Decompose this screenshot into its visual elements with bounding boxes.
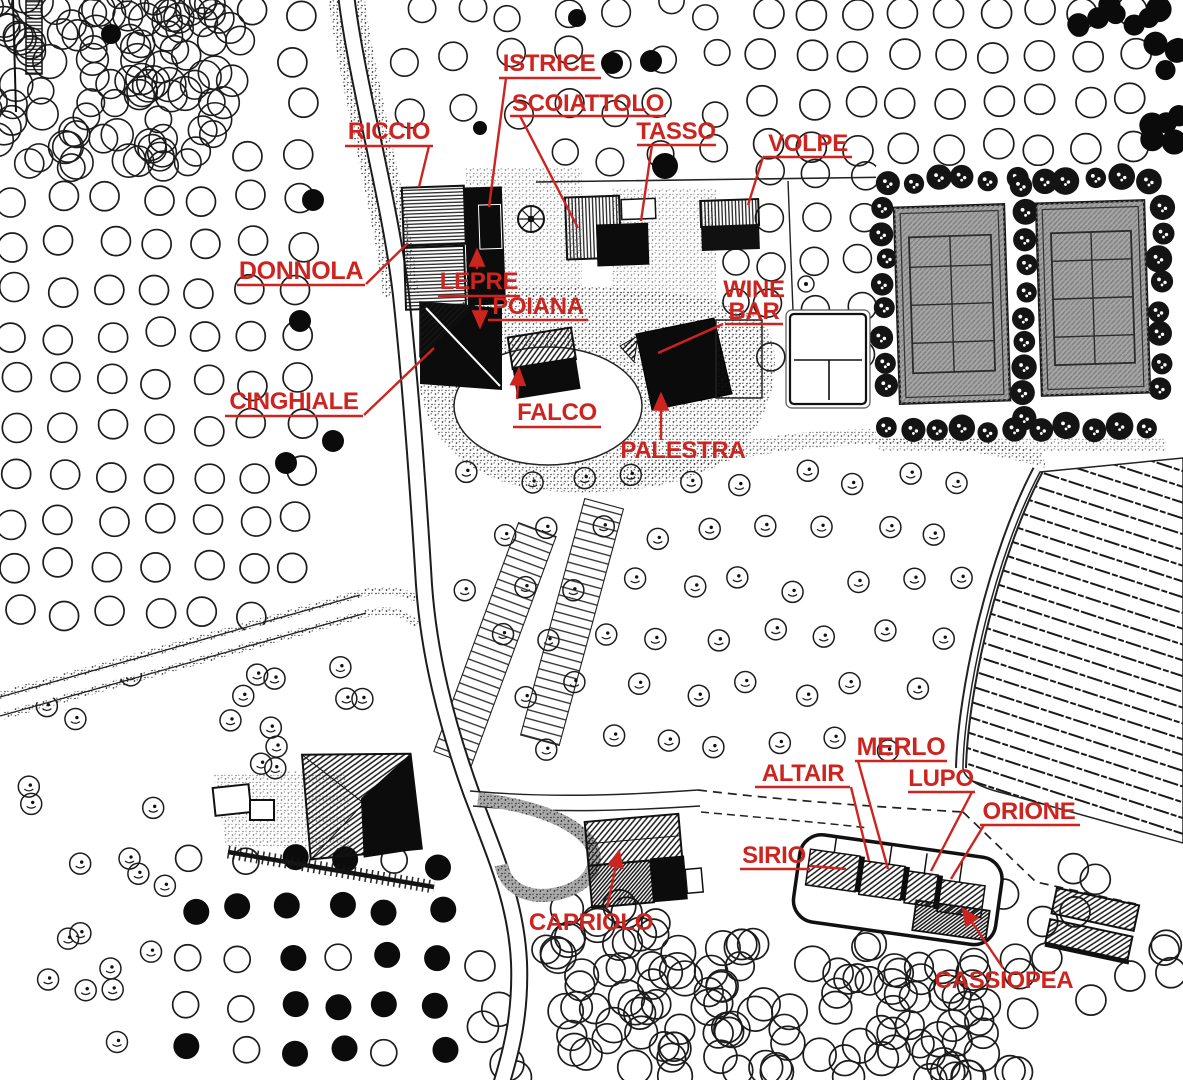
olive-tree-icon xyxy=(154,875,175,896)
vineyard xyxy=(961,458,1183,843)
hedge-tree-icon xyxy=(1082,418,1106,442)
olive-tree-icon xyxy=(266,736,287,757)
olive-tree-icon xyxy=(456,461,477,482)
parking-rows xyxy=(434,499,624,766)
olive-tree-icon xyxy=(647,528,668,549)
label-sirio-text: SIRIO xyxy=(742,842,806,869)
hedge-tree-icon xyxy=(901,418,925,442)
olive-tree-icon xyxy=(102,979,123,1000)
hedge-tree-icon xyxy=(869,222,893,246)
label-donnola-text: DONNOLA xyxy=(239,257,364,285)
hedge-tree-icon xyxy=(877,248,897,268)
building-capriolo xyxy=(585,812,704,907)
olive-tree-icon xyxy=(946,472,967,493)
hedge-tree-icon xyxy=(1150,195,1175,220)
building-sirio-row xyxy=(791,832,1005,948)
label-palestra-text: PALESTRA xyxy=(620,437,745,464)
hedge-tree-icon xyxy=(926,419,947,440)
olive-tree-icon xyxy=(38,969,59,990)
olive-tree-icon xyxy=(699,518,720,539)
hedge-tree-icon xyxy=(1151,270,1173,292)
hedge-tree-icon xyxy=(1013,199,1039,225)
olive-tree-icon xyxy=(839,673,860,694)
olive-tree-icon xyxy=(233,685,254,706)
label-cassiopea-text: CASSIOPEA xyxy=(935,967,1074,994)
olive-tree-icon xyxy=(797,460,818,481)
hedge-tree-icon xyxy=(1136,169,1162,195)
olive-tree-icon xyxy=(645,628,666,649)
building-farmhouse xyxy=(286,737,436,876)
olive-tree-icon xyxy=(143,797,164,818)
olive-tree-icon xyxy=(330,657,351,678)
hedge-tree-icon xyxy=(926,164,951,189)
hedge-tree-icon xyxy=(876,417,897,438)
hedge-tree-icon xyxy=(1137,418,1157,438)
hedge-tree-icon xyxy=(870,326,894,350)
label-lepre-text: LEPRE xyxy=(440,268,519,295)
label-orione-text: ORIONE xyxy=(983,798,1076,825)
olive-tree-icon xyxy=(797,685,818,706)
hedge-tree-icon xyxy=(949,415,975,441)
hedge-tree-icon xyxy=(1012,406,1036,430)
label-merlo-text: MERLO xyxy=(857,733,946,761)
hedge-tree-icon xyxy=(1011,354,1036,379)
hedge-tree-icon xyxy=(1149,377,1172,400)
olive-tree-icon xyxy=(119,848,140,869)
hedge-tree-icon xyxy=(1017,282,1037,302)
olive-tree-icon xyxy=(106,1031,127,1052)
fountain xyxy=(518,206,544,232)
label-volpe-text: VOLPE xyxy=(768,130,848,157)
site-plan-svg: RICCIOISTRICESCOIATTOLOTASSOVOLPEDONNOLA… xyxy=(0,0,1183,1080)
olive-tree-icon xyxy=(824,727,845,748)
label-lupo-text: LUPO xyxy=(908,765,973,792)
site-plan: RICCIOISTRICESCOIATTOLOTASSOVOLPEDONNOLA… xyxy=(0,0,1183,1080)
olive-tree-icon xyxy=(688,685,709,706)
hedge-tree-icon xyxy=(1010,380,1035,405)
olive-tree-icon xyxy=(907,678,928,699)
olive-tree-icon xyxy=(755,516,776,537)
olive-tree-icon xyxy=(260,717,281,738)
hedge-tree-icon xyxy=(1153,223,1175,245)
olive-tree-icon xyxy=(100,958,121,979)
olive-tree-icon xyxy=(951,567,972,588)
hedge-tree-icon xyxy=(1108,163,1135,190)
label-volpe: VOLPE xyxy=(748,130,852,205)
olive-tree-icon xyxy=(933,628,954,649)
olive-tree-icon xyxy=(141,941,162,962)
olive-tree-icon xyxy=(811,516,832,537)
hedge-tree-icon xyxy=(871,273,894,296)
olive-tree-icon xyxy=(220,710,241,731)
olive-tree-icon xyxy=(813,626,834,647)
hedge-tree-icon xyxy=(1151,353,1172,374)
olive-tree-icon xyxy=(904,568,925,589)
olive-tree-icon xyxy=(65,709,86,730)
hedge-tree-icon xyxy=(1017,254,1038,275)
label-wine-bar-text: WINEBAR xyxy=(723,276,785,325)
olive-tree-icon xyxy=(336,688,357,709)
hedge-tree-icon xyxy=(1013,331,1035,353)
hedge-tree-icon xyxy=(876,171,900,195)
olive-tree-icon xyxy=(880,517,901,538)
hedge-tree-icon xyxy=(1145,245,1172,272)
building-volpe xyxy=(700,199,760,251)
label-altair-text: ALTAIR xyxy=(762,760,845,787)
olive-tree-icon xyxy=(900,463,921,484)
olive-tree-icon xyxy=(495,525,516,546)
hedge-tree-icon xyxy=(904,174,924,194)
olive-tree-icon xyxy=(769,733,790,754)
label-capriolo-text: CAPRIOLO xyxy=(529,909,653,936)
olive-tree-icon xyxy=(842,473,863,494)
label-falco-text: FALCO xyxy=(517,399,597,426)
olive-tree-icon xyxy=(923,524,944,545)
olive-tree-icon xyxy=(685,576,706,597)
hedge-tree-icon xyxy=(1013,228,1036,251)
olive-tree-icon xyxy=(596,624,617,645)
olive-tree-icon xyxy=(735,672,756,693)
hedge-tree-icon xyxy=(1147,321,1172,346)
pool xyxy=(786,310,870,408)
olive-tree-icon xyxy=(70,853,91,874)
hedge-tree-icon xyxy=(871,197,893,219)
olive-tree-icon xyxy=(708,630,729,651)
olive-tree-icon xyxy=(782,581,803,602)
tennis-court-1 xyxy=(894,204,1010,403)
olive-tree-icon xyxy=(629,673,650,694)
label-istrice-text: ISTRICE xyxy=(503,50,596,77)
label-poiana-text: POIANA xyxy=(492,293,584,320)
hedge-tree-icon xyxy=(1052,167,1080,195)
olive-tree-icon xyxy=(703,737,724,758)
hedge-tree-icon xyxy=(1148,301,1169,322)
tennis-court-2 xyxy=(1036,200,1150,395)
hedge-tree-icon xyxy=(875,374,898,397)
hedge-tree-icon xyxy=(1012,307,1035,330)
hedge-tree-icon xyxy=(977,422,997,442)
olive-tree-icon xyxy=(128,863,149,884)
hedge-tree-icon xyxy=(875,353,896,374)
olive-tree-icon xyxy=(765,619,786,640)
olive-tree-icon xyxy=(251,753,272,774)
hedge-tree-icon xyxy=(978,171,998,191)
hedge-tree-icon xyxy=(1010,175,1032,197)
olive-tree-icon xyxy=(875,620,896,641)
olive-tree-icon xyxy=(75,980,96,1001)
olive-tree-icon xyxy=(70,923,91,944)
hedge-tree-icon xyxy=(1052,412,1079,439)
hedge-tree-icon xyxy=(1086,168,1106,188)
olive-tree-icon xyxy=(625,568,646,589)
label-cinghiale-text: CINGHIALE xyxy=(229,388,359,415)
olive-tree-icon xyxy=(848,571,869,592)
olive-tree-icon xyxy=(729,475,750,496)
olive-tree-icon xyxy=(727,567,748,588)
hedge-tree-icon xyxy=(1106,412,1134,440)
olive-tree-icon xyxy=(58,928,79,949)
olive-tree-icon xyxy=(658,730,679,751)
tennis-courts-area xyxy=(869,163,1175,442)
hedge-tree-icon xyxy=(950,165,974,189)
label-riccio-text: RICCIO xyxy=(348,118,430,145)
olive-tree-icon xyxy=(604,725,625,746)
olive-tree-icon xyxy=(454,580,475,601)
label-tasso-text: TASSO xyxy=(636,118,715,145)
hedge-tree-icon xyxy=(874,297,895,318)
label-scoiattolo-text: SCOIATTOLO xyxy=(512,90,664,117)
building-lepre xyxy=(420,302,502,390)
